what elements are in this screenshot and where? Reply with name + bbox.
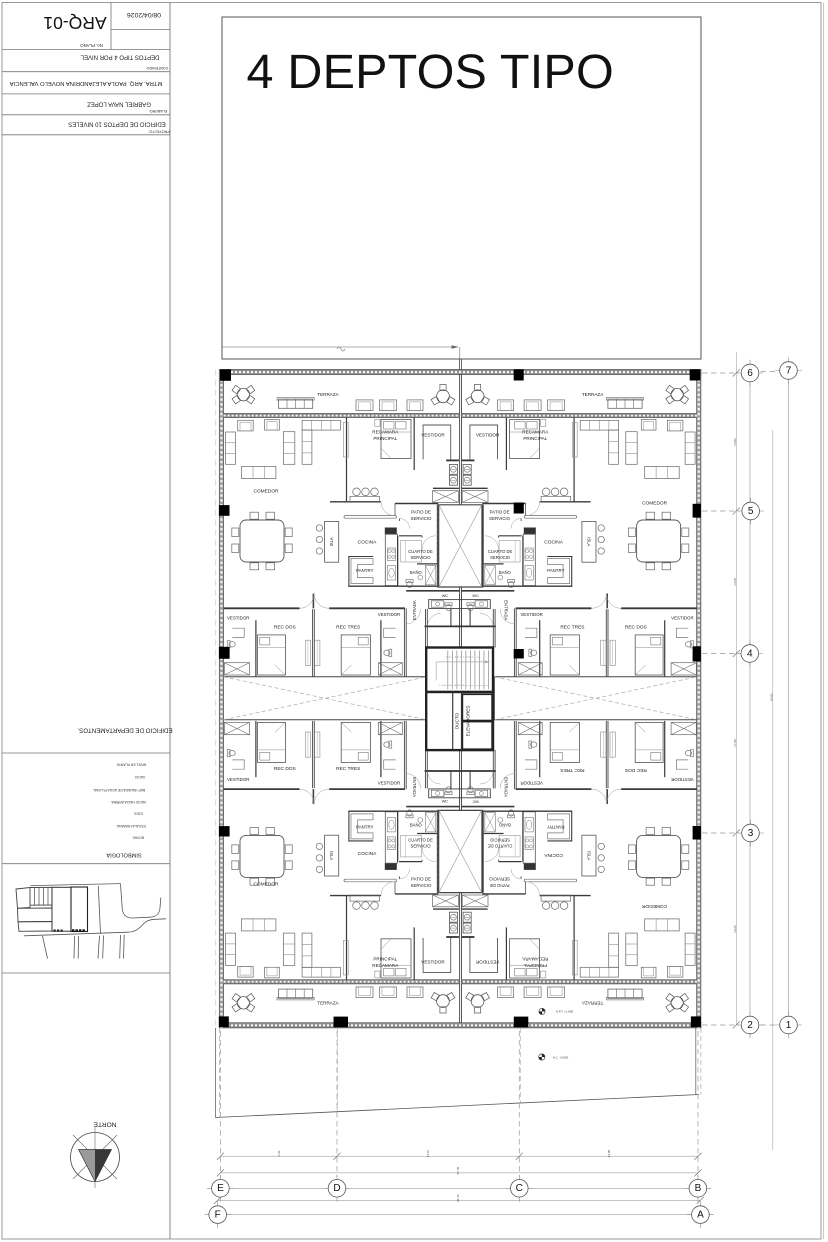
svg-text:7: 7 — [786, 365, 792, 376]
svg-text:A: A — [697, 1209, 704, 1220]
svg-text:1: 1 — [786, 1020, 792, 1031]
svg-text:BAÑO: BAÑO — [410, 570, 423, 575]
svg-text:EDIFICIO DE DEPTOS 10 NIVELES: EDIFICIO DE DEPTOS 10 NIVELES — [68, 120, 166, 126]
svg-text:DUCTO: DUCTO — [455, 712, 460, 729]
svg-text:BAÑO: BAÑO — [410, 823, 423, 828]
svg-text:EDIFICIO DE DEPARTAMENTOS.: EDIFICIO DE DEPARTAMENTOS. — [77, 727, 172, 734]
svg-text:BAP: BAJADA DE AGUA PLUVIAL: BAP: BAJADA DE AGUA PLUVIAL — [93, 788, 146, 792]
svg-text:WC: WC — [442, 594, 449, 598]
svg-text:VESTIDOR: VESTIDOR — [520, 780, 542, 785]
svg-text:PRINCIPAL: PRINCIPAL — [523, 436, 547, 441]
svg-text:SERVICIO: SERVICIO — [411, 555, 432, 560]
svg-text:SERVICIO: SERVICIO — [489, 876, 510, 881]
svg-text:PANTRY: PANTRY — [356, 568, 373, 573]
svg-text:ESCALA HUMANA: ESCALA HUMANA — [116, 824, 146, 828]
svg-text:TERRAZA: TERRAZA — [317, 392, 339, 397]
svg-text:PANTRY: PANTRY — [547, 825, 564, 830]
svg-text:SERVICIO: SERVICIO — [411, 516, 432, 521]
svg-text:SIMBOLOGÍA: SIMBOLOGÍA — [106, 851, 141, 858]
svg-text:N.P.T. +1.800: N.P.T. +1.800 — [556, 1010, 574, 1014]
svg-text:B: B — [695, 1183, 702, 1194]
svg-text:17.95: 17.95 — [733, 739, 737, 747]
svg-text:PATIO DE: PATIO DE — [490, 510, 510, 515]
svg-text:SERVICIO: SERVICIO — [489, 516, 510, 521]
svg-text:VACIO HACIA ARRIBA: VACIO HACIA ARRIBA — [111, 800, 147, 804]
svg-text:ENTRADA: ENTRADA — [504, 777, 509, 797]
svg-text:DEPTOS TIPO 4 POR NIVEL: DEPTOS TIPO 4 POR NIVEL — [80, 54, 159, 60]
svg-text:6: 6 — [747, 368, 753, 379]
svg-text:REC DOS: REC DOS — [625, 625, 647, 631]
svg-text:E: E — [217, 1183, 224, 1194]
svg-text:RECAMARA: RECAMARA — [372, 963, 399, 968]
svg-text:VESTIDOR: VESTIDOR — [475, 960, 499, 965]
svg-text:ENTRADA: ENTRADA — [412, 600, 417, 620]
svg-text:PANTRY: PANTRY — [547, 568, 564, 573]
svg-text:CUARTO DE: CUARTO DE — [408, 837, 433, 842]
svg-text:VESTIDOR: VESTIDOR — [421, 433, 445, 438]
svg-text:GABRIEL NAVA LOPEZ: GABRIEL NAVA LOPEZ — [87, 101, 151, 107]
svg-text:ISLA: ISLA — [587, 851, 592, 860]
svg-text:VESTIDOR: VESTIDOR — [378, 612, 400, 617]
svg-text:VESTIDOR: VESTIDOR — [520, 612, 542, 617]
svg-text:REC DOS: REC DOS — [625, 767, 647, 773]
svg-text:19.20: 19.20 — [733, 925, 737, 933]
svg-text:PATIO DE: PATIO DE — [411, 876, 431, 881]
svg-text:F: F — [215, 1209, 221, 1220]
svg-text:SERVICIO: SERVICIO — [411, 883, 432, 888]
svg-text:5: 5 — [748, 506, 754, 517]
svg-text:N.C. +0.900: N.C. +0.900 — [553, 1055, 569, 1059]
svg-text:NORTE: NORTE — [93, 1121, 117, 1128]
svg-text:CUARTO DE: CUARTO DE — [408, 549, 433, 554]
svg-text:COMEDOR: COMEDOR — [642, 903, 668, 909]
svg-text:PROYECTO:: PROYECTO: — [148, 129, 169, 133]
svg-text:CONTENIDO:: CONTENIDO: — [146, 66, 169, 70]
svg-text:COCINA: COCINA — [358, 851, 377, 857]
svg-text:No. PLANO: No. PLANO — [80, 43, 103, 48]
svg-text:REC DOS: REC DOS — [274, 625, 296, 631]
svg-text:C: C — [516, 1183, 523, 1194]
svg-text:ISLA: ISLA — [329, 537, 334, 546]
svg-text:CUARTO DE: CUARTO DE — [488, 549, 513, 554]
svg-text:3: 3 — [748, 828, 754, 839]
svg-text:36.30: 36.30 — [456, 1194, 460, 1202]
svg-text:PATIO DE: PATIO DE — [490, 883, 510, 888]
svg-text:TERRAZA: TERRAZA — [317, 1001, 339, 1006]
svg-text:123456789012: 123456789012 — [446, 655, 480, 659]
svg-text:TERRAZA: TERRAZA — [582, 392, 604, 397]
svg-text:RECAMARA: RECAMARA — [521, 957, 548, 962]
svg-text:37.35: 37.35 — [456, 1166, 460, 1174]
svg-text:ELABORÓ:: ELABORÓ: — [149, 109, 167, 114]
svg-text:COMEDOR: COMEDOR — [253, 488, 279, 494]
svg-text:PRINCIPAL: PRINCIPAL — [523, 963, 547, 968]
svg-text:PRINCIPAL: PRINCIPAL — [373, 957, 397, 962]
svg-text:4 DEPTOS TIPO: 4 DEPTOS TIPO — [247, 45, 614, 99]
svg-text:REC DOS: REC DOS — [274, 766, 296, 772]
svg-text:14.10: 14.10 — [426, 1149, 430, 1157]
svg-text:ELEVADORES: ELEVADORES — [465, 706, 470, 737]
svg-text:VESTIDOR: VESTIDOR — [671, 616, 693, 621]
svg-text:WC: WC — [472, 594, 479, 598]
svg-text:64.81: 64.81 — [770, 693, 774, 701]
svg-text:ISLA: ISLA — [587, 537, 592, 546]
svg-text:COMEDOR: COMEDOR — [253, 881, 279, 887]
svg-text:ENTRADA: ENTRADA — [504, 600, 509, 620]
svg-text:1234567890: 1234567890 — [439, 683, 465, 687]
svg-text:REC TRES: REC TRES — [336, 625, 360, 631]
svg-text:08/04/2026: 08/04/2026 — [127, 11, 161, 18]
svg-text:VESTIDOR: VESTIDOR — [378, 780, 400, 785]
svg-text:SERVICIO: SERVICIO — [490, 555, 511, 560]
svg-text:14.25: 14.25 — [733, 578, 737, 586]
svg-text:COCINA: COCINA — [358, 539, 377, 545]
svg-text:2: 2 — [747, 1020, 753, 1031]
svg-text:BAÑO: BAÑO — [499, 570, 512, 575]
svg-text:MTRA. ARQ. PAOLA ALEJANDRINA N: MTRA. ARQ. PAOLA ALEJANDRINA NOVELO VALE… — [10, 80, 163, 86]
svg-text:WC: WC — [472, 800, 479, 804]
svg-text:WC: WC — [442, 800, 449, 804]
svg-text:TERRAZA: TERRAZA — [581, 1001, 603, 1006]
svg-text:CUARTO DE: CUARTO DE — [488, 843, 513, 848]
svg-text:REC TRES: REC TRES — [560, 767, 584, 773]
svg-text:VESTIDOR: VESTIDOR — [671, 777, 693, 782]
svg-text:SERVICIO: SERVICIO — [411, 843, 432, 848]
svg-text:VESTIDOR: VESTIDOR — [227, 777, 249, 782]
svg-text:13.85: 13.85 — [607, 1149, 611, 1157]
svg-text:PRINCIPAL: PRINCIPAL — [373, 436, 397, 441]
svg-text:ARQ-01: ARQ-01 — [43, 13, 106, 33]
svg-text:COCINA: COCINA — [544, 539, 563, 545]
svg-text:PANTRY: PANTRY — [356, 825, 373, 830]
svg-text:VESTIDOR: VESTIDOR — [227, 616, 249, 621]
svg-text:REC TRES: REC TRES — [560, 625, 584, 631]
svg-text:COCINA: COCINA — [543, 852, 562, 858]
svg-text:ENTRADA: ENTRADA — [412, 777, 417, 797]
svg-text:RECAMARA: RECAMARA — [522, 429, 549, 434]
svg-text:BOYAS: BOYAS — [132, 836, 144, 840]
svg-text:BAÑO: BAÑO — [498, 823, 511, 828]
svg-text:REC TRES: REC TRES — [336, 766, 360, 772]
svg-text:PATIO DE: PATIO DE — [411, 510, 431, 515]
svg-text:D: D — [333, 1183, 340, 1194]
svg-text:COMEDOR: COMEDOR — [642, 500, 668, 506]
svg-text:VACIO: VACIO — [134, 775, 145, 779]
svg-text:4: 4 — [747, 648, 753, 659]
svg-text:VESTIDOR: VESTIDOR — [421, 960, 445, 965]
svg-text:13.80: 13.80 — [733, 438, 737, 446]
svg-text:RECAMARA: RECAMARA — [372, 429, 399, 434]
svg-text:VESTIDOR: VESTIDOR — [476, 433, 500, 438]
svg-text:ISLA: ISLA — [329, 851, 334, 860]
svg-text:EJES: EJES — [134, 812, 143, 816]
svg-text:SERVICIO: SERVICIO — [489, 837, 510, 842]
svg-text:NIVEL EN PLANTA: NIVEL EN PLANTA — [116, 763, 146, 767]
svg-text:9.05: 9.05 — [277, 1150, 281, 1156]
